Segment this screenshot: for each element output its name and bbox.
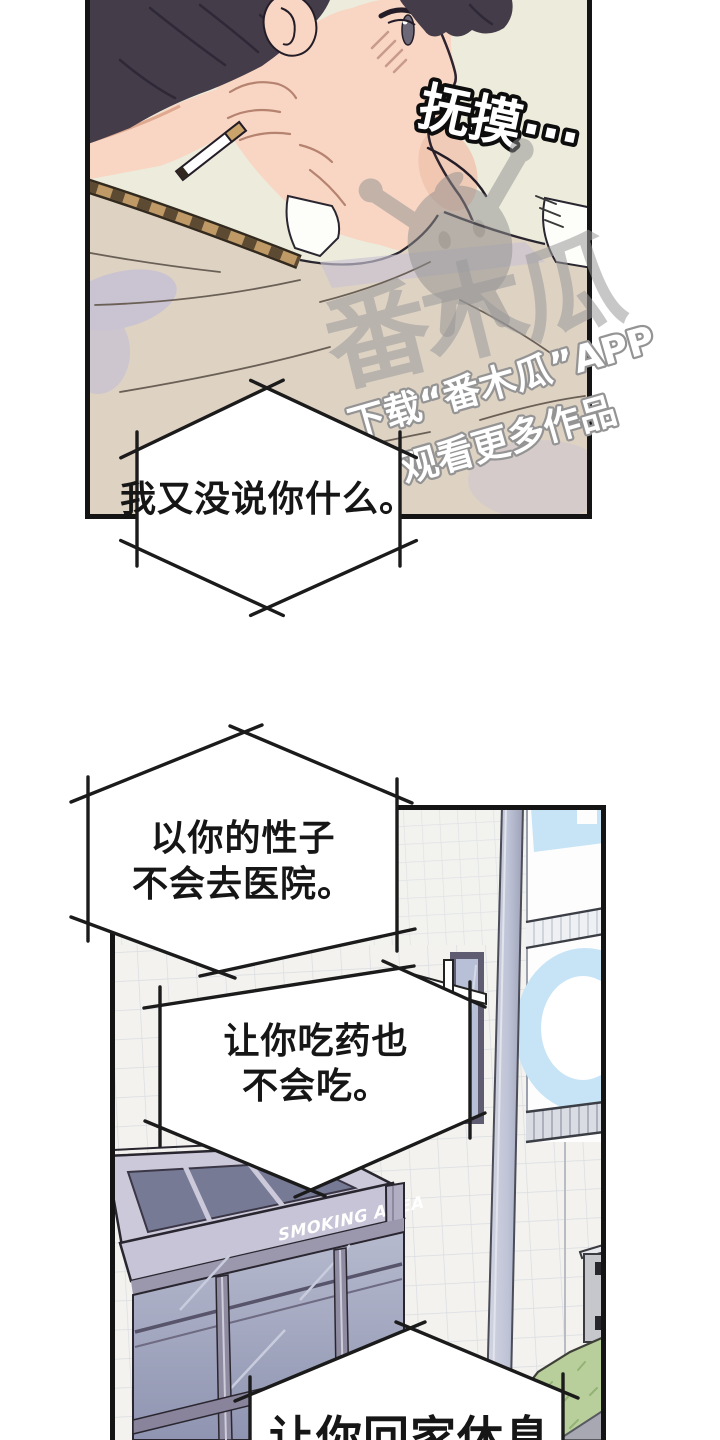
bubble-3-line2: 不会吃。 [242,1066,390,1107]
bubble-3-line1: 让你吃药也 [223,1021,408,1062]
sign-ring-logo [515,948,655,1112]
bubble-2-line1: 以你的性子 [150,818,335,859]
building-sign [515,808,655,1142]
bubble-1-text: 我又没说你什么。 [120,479,416,520]
bubble-2-line2: 不会去医院。 [132,864,354,905]
utility-cabinet [580,1243,612,1342]
webtoon-page: 抚摸··· 番木瓜 下载“番木瓜”APP 观看更多作品 [0,0,720,1440]
comic-canvas: 抚摸··· 番木瓜 下载“番木瓜”APP 观看更多作品 [0,0,720,1440]
bubble-4-text: 让你回家休息 [269,1411,551,1440]
